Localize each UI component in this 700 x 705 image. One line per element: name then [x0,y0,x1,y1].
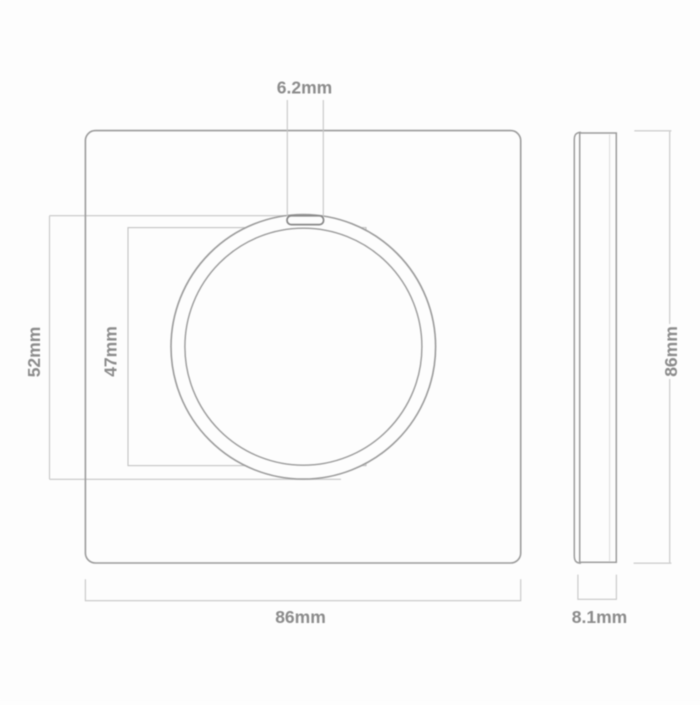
svg-text:52mm: 52mm [24,327,44,378]
svg-text:86mm: 86mm [661,326,681,377]
svg-text:8.1mm: 8.1mm [572,607,627,627]
svg-text:86mm: 86mm [275,607,326,627]
svg-text:6.2mm: 6.2mm [277,78,332,98]
svg-text:47mm: 47mm [100,326,120,377]
